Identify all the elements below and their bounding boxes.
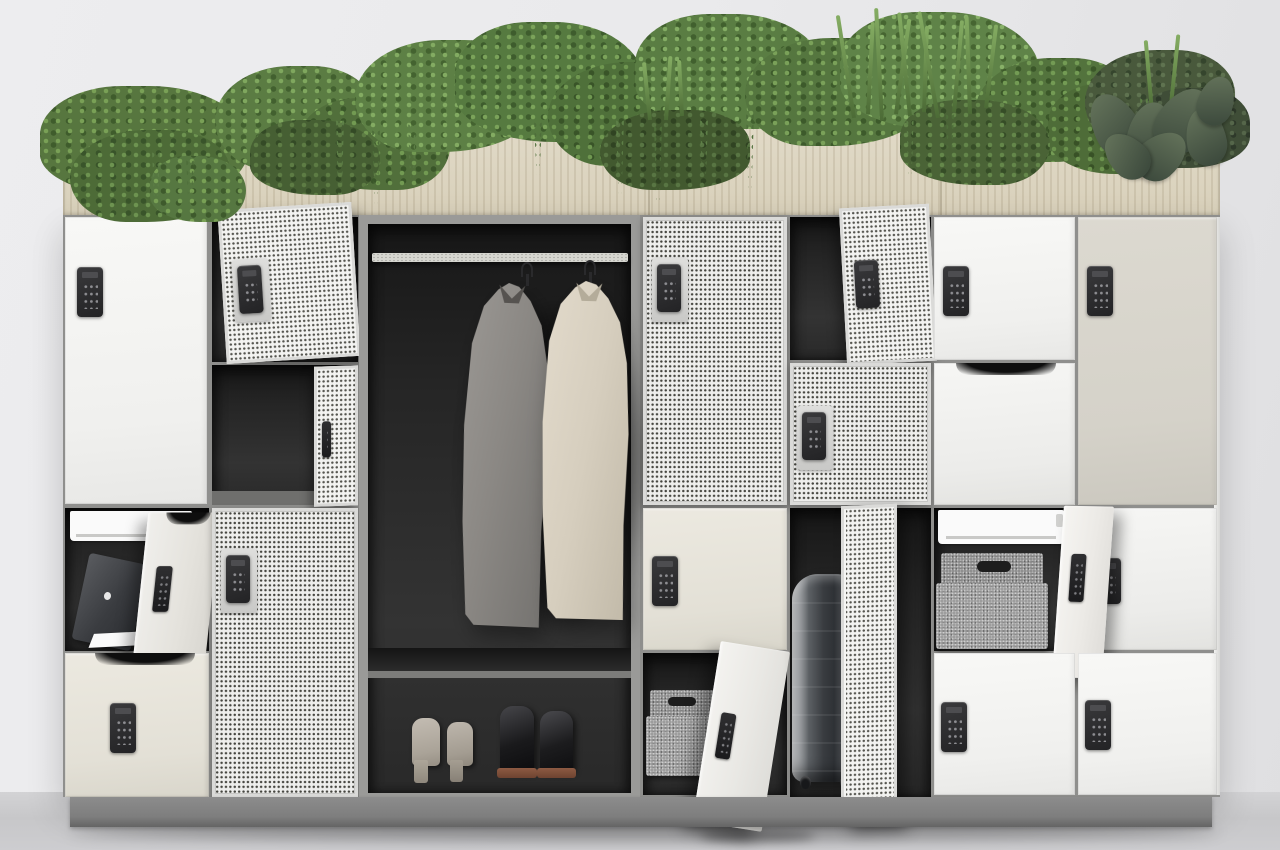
- plant-cluster: [150, 156, 246, 222]
- boot-beige-left: [412, 718, 440, 766]
- mesh-door-c4-tall: [643, 217, 787, 505]
- keypad-lock: [652, 556, 678, 606]
- paper-stack-line: [946, 536, 1056, 539]
- keypad-lock: [226, 555, 250, 603]
- shoe-shelf-top: [368, 648, 631, 673]
- door-lock-inner: [715, 712, 737, 760]
- keypad-lock: [854, 260, 880, 309]
- open-door-floor-shadow: [700, 830, 815, 842]
- keypad-lock: [802, 412, 826, 460]
- door-lock-inner: [152, 566, 173, 612]
- felt-basket-handle-slot: [668, 697, 696, 706]
- keypad-lock: [657, 264, 681, 312]
- door-scoop-handle: [165, 512, 210, 524]
- keypad-lock: [77, 267, 103, 317]
- plant-cluster: [900, 100, 1050, 185]
- locker-door-c6-r2: [934, 363, 1075, 505]
- plinth: [70, 797, 1212, 827]
- mesh-door-c2-tall: [212, 508, 358, 797]
- boot-beige-right-heel: [450, 760, 463, 782]
- planter-greenery: [0, 0, 1280, 260]
- keypad-lock: [237, 265, 264, 314]
- door-lock-inner: [1068, 554, 1086, 602]
- keypad-lock: [1087, 266, 1113, 316]
- mesh-door-ajar-c2: [314, 365, 358, 507]
- door-scoop-handle: [956, 363, 1056, 375]
- keypad-lock: [941, 702, 967, 752]
- plant-cluster: [250, 120, 380, 195]
- keypad-lock: [110, 703, 136, 753]
- boot-black-left: [500, 706, 534, 772]
- door-scoop-handle: [95, 653, 195, 665]
- door-lock-inner: [322, 421, 331, 457]
- keypad-lock: [943, 266, 969, 316]
- locker-door-c1-tall: [65, 217, 207, 504]
- coat-cream: [537, 280, 634, 620]
- scene-office-locker-wall: [0, 0, 1280, 850]
- boot-black-right: [540, 711, 573, 772]
- coat-body: [537, 280, 634, 620]
- suitcase-wheel: [800, 776, 811, 789]
- mesh-door-open-c5-tall: [841, 504, 897, 826]
- shoe-shelf-edge: [368, 671, 631, 678]
- boot-black-left-sole: [497, 768, 537, 778]
- felt-basket-front: [936, 583, 1048, 649]
- locker-door-c7-tall: [1078, 217, 1217, 505]
- locker-door-c1-bottom: [65, 653, 209, 797]
- boot-beige-left-heel: [414, 760, 428, 783]
- keypad-lock: [1085, 700, 1111, 750]
- boot-black-right-sole: [537, 768, 576, 778]
- felt-basket-handle-slot: [977, 561, 1011, 572]
- mesh-door-c5-middle: [790, 363, 931, 505]
